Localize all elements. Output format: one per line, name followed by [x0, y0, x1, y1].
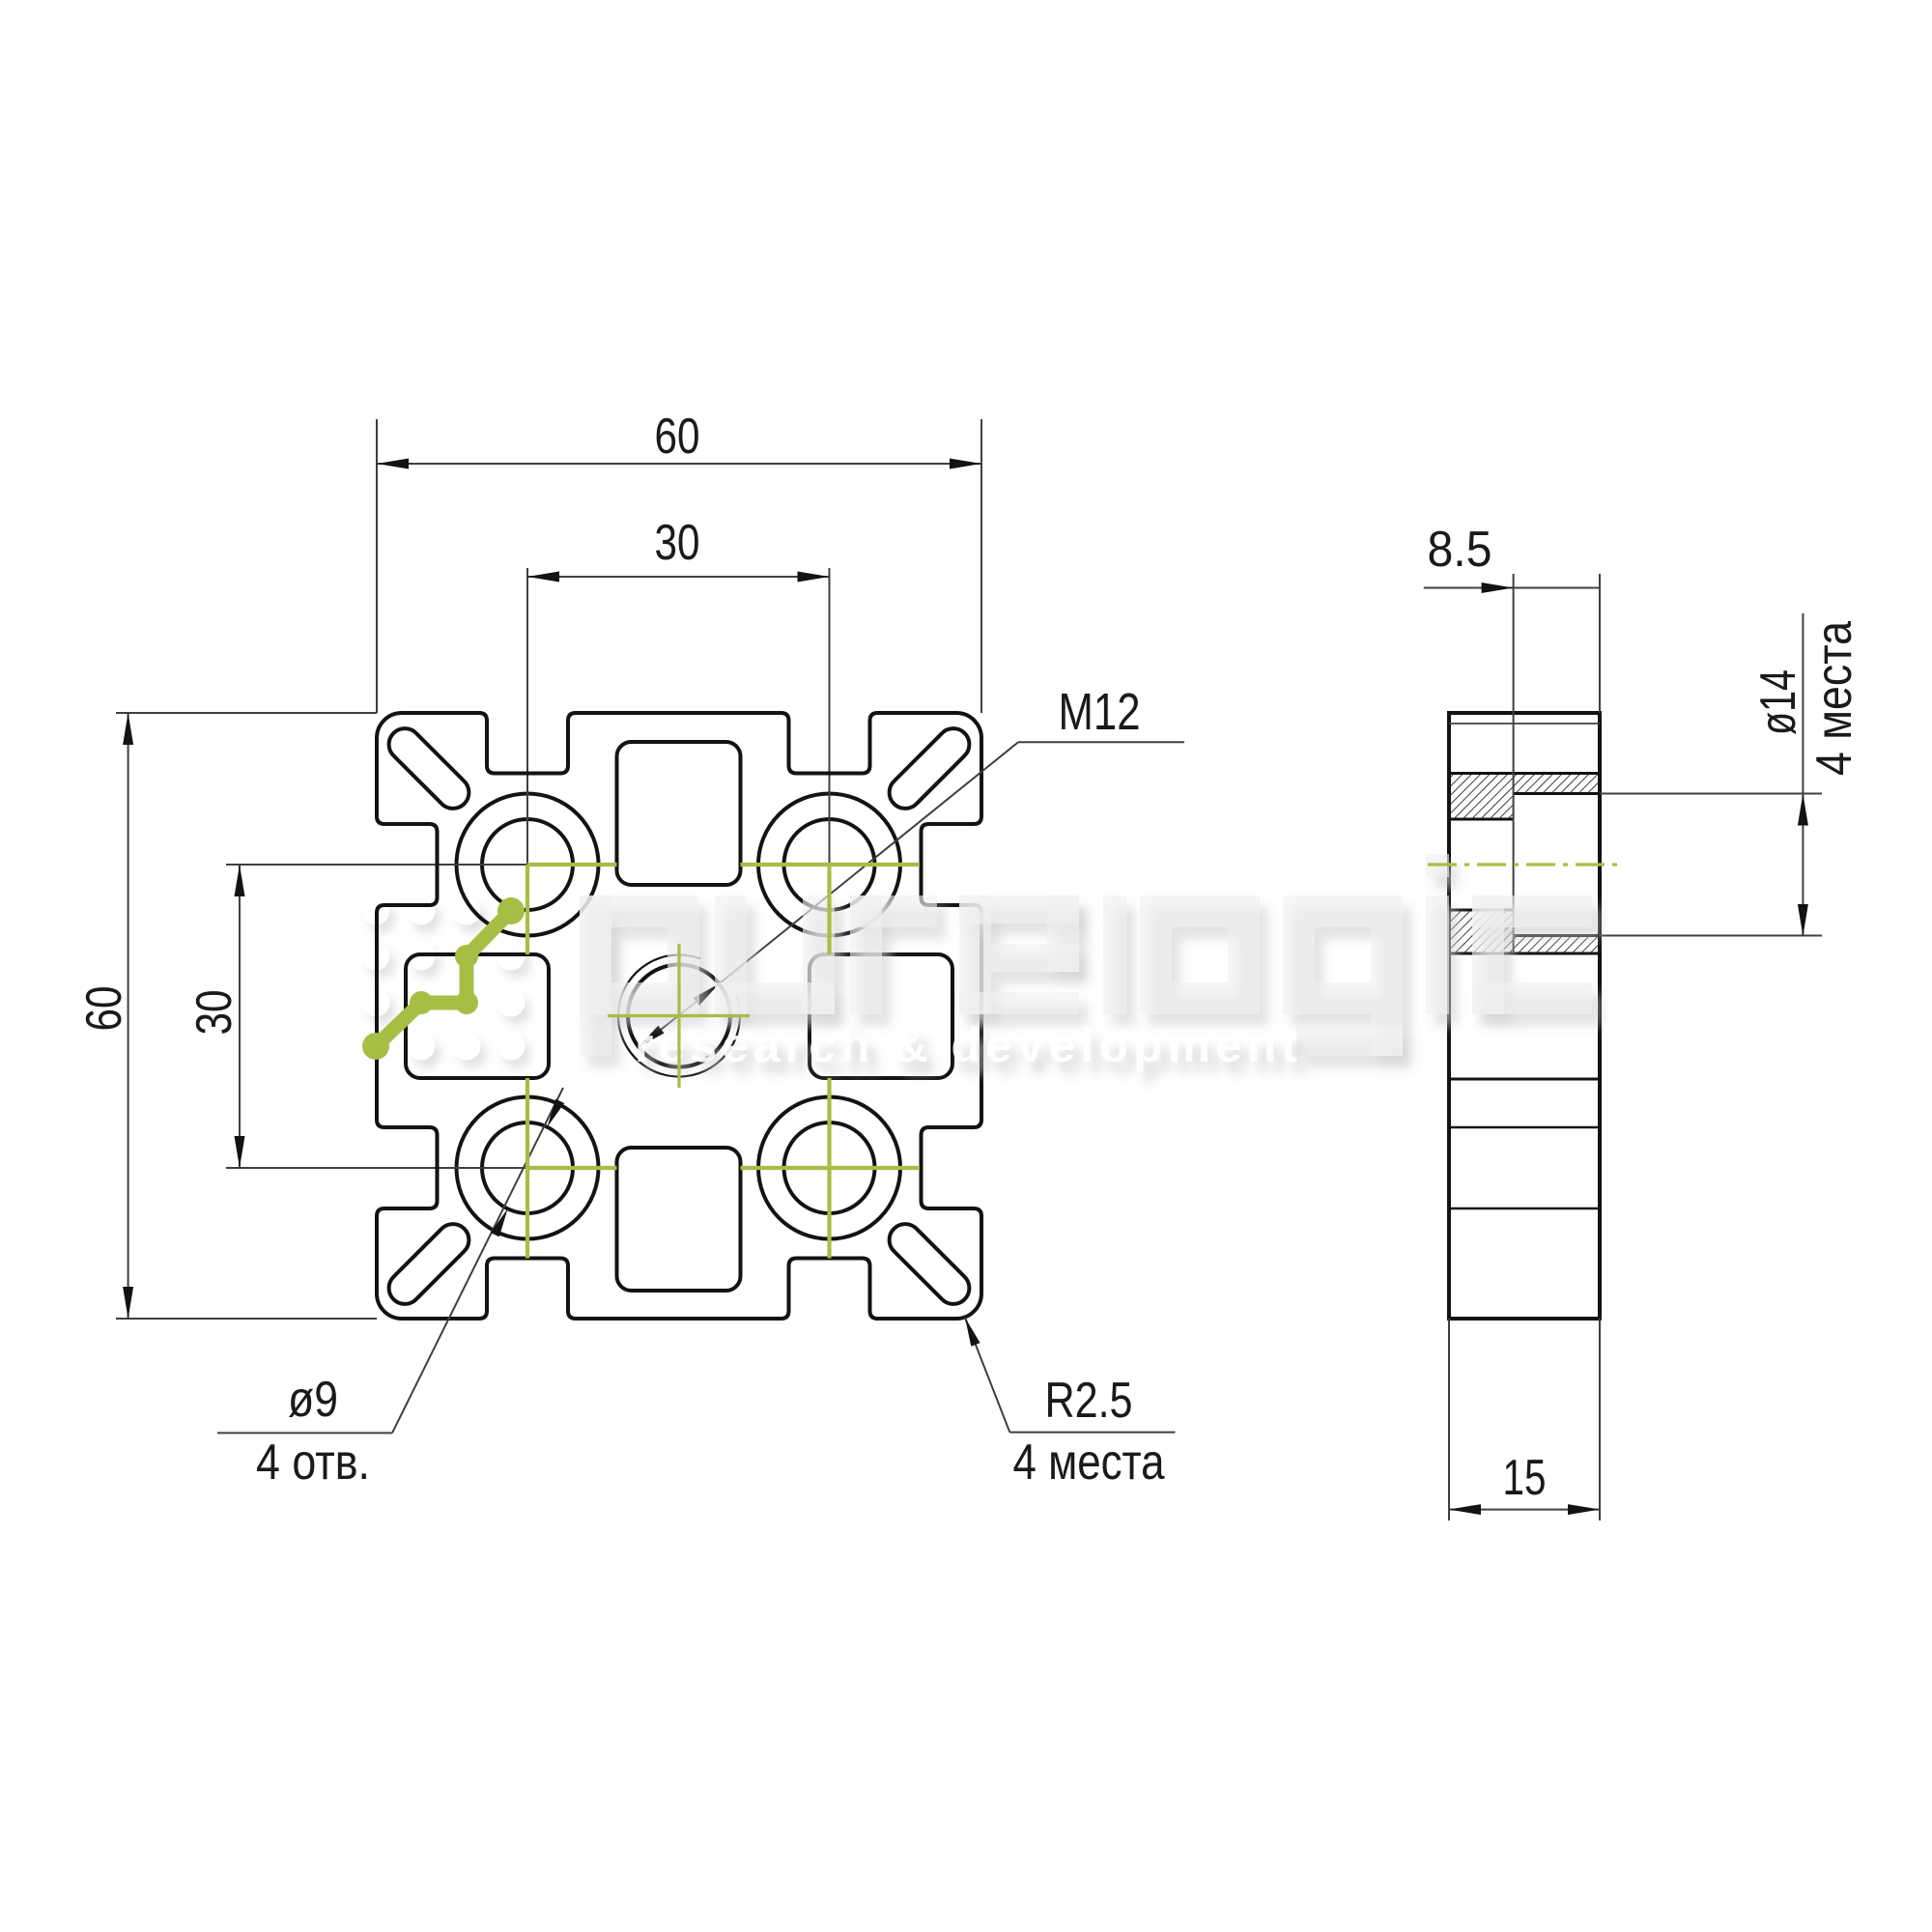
svg-text:M12: M12	[1059, 683, 1141, 741]
svg-text:ø9: ø9	[288, 1372, 338, 1428]
svg-text:60: 60	[76, 986, 132, 1032]
svg-text:30: 30	[186, 990, 242, 1036]
svg-text:4 отв.: 4 отв.	[256, 1435, 370, 1491]
svg-text:R2.5: R2.5	[1045, 1373, 1133, 1429]
svg-text:15: 15	[1503, 1450, 1547, 1506]
svg-text:4 места: 4 места	[1806, 621, 1862, 776]
svg-text:research & development: research & development	[635, 1018, 1297, 1072]
svg-text:4 места: 4 места	[1013, 1435, 1165, 1491]
svg-text:ø14: ø14	[1750, 669, 1806, 735]
svg-text:8.5: 8.5	[1428, 522, 1492, 578]
svg-text:60: 60	[655, 409, 700, 465]
svg-text:30: 30	[655, 515, 700, 571]
